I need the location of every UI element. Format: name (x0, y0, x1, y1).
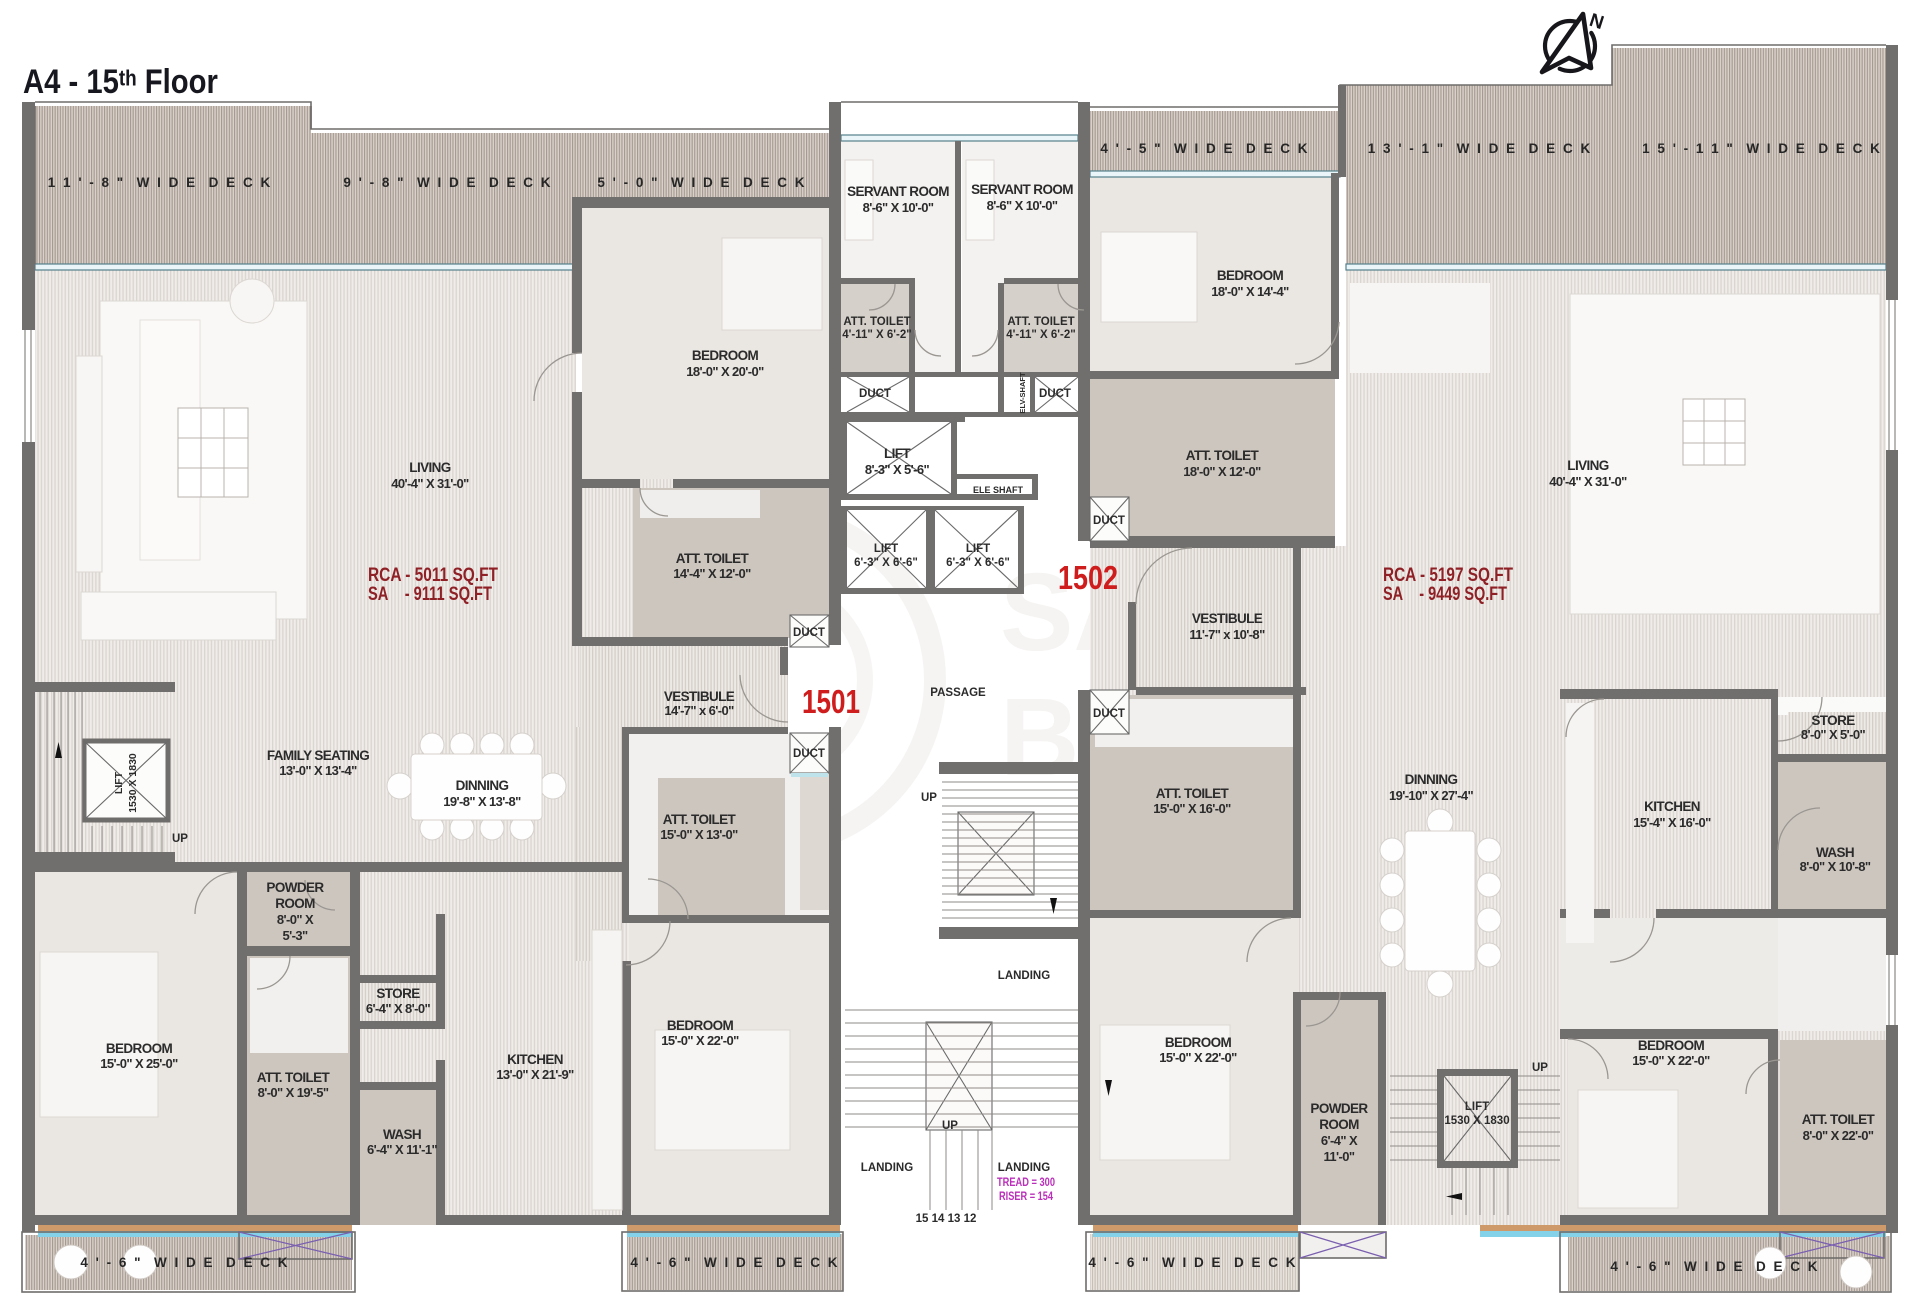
svg-text:1 1 ' - 8 " W I D E D E C K: 1 1 ' - 8 " W I D E D E C K (48, 175, 272, 190)
svg-text:LIVING: LIVING (409, 460, 451, 475)
svg-text:UP: UP (921, 792, 937, 804)
svg-text:RISER = 154: RISER = 154 (999, 1191, 1053, 1203)
svg-text:WASH: WASH (383, 1127, 421, 1142)
svg-text:1 5 ' - 1 1 " W I D E D E C: 1 5 ' - 1 1 " W I D E D E C K (1642, 141, 1882, 156)
svg-text:DUCT: DUCT (1093, 708, 1125, 720)
svg-text:LIFT: LIFT (874, 543, 898, 555)
svg-text:14'-4" X 12'-0": 14'-4" X 12'-0" (673, 566, 751, 581)
svg-text:SA - 9449 SQ.FT: SA - 9449 SQ.FT (1383, 584, 1507, 605)
svg-text:ROOM: ROOM (1319, 1117, 1359, 1132)
svg-text:13'-0" X 13'-4": 13'-0" X 13'-4" (279, 763, 357, 778)
svg-text:DUCT: DUCT (1039, 388, 1071, 400)
svg-text:8'-0" X: 8'-0" X (277, 912, 314, 927)
svg-text:RCA - 5011 SQ.FT: RCA - 5011 SQ.FT (368, 565, 498, 586)
svg-text:6'-3" X 6'-6": 6'-3" X 6'-6" (946, 557, 1010, 569)
svg-text:5'-3": 5'-3" (282, 928, 307, 943)
svg-text:LANDING: LANDING (998, 1162, 1050, 1174)
svg-text:ATT. TOILET: ATT. TOILET (1156, 786, 1230, 801)
svg-text:18'-0" X 20'-0": 18'-0" X 20'-0" (686, 364, 764, 379)
svg-text:40'-4" X 31'-0": 40'-4" X 31'-0" (391, 476, 469, 491)
svg-text:BEDROOM: BEDROOM (667, 1018, 734, 1033)
svg-text:ATT. TOILET: ATT. TOILET (257, 1070, 331, 1085)
svg-text:1530 X 1830: 1530 X 1830 (1444, 1115, 1509, 1127)
svg-text:BEDROOM: BEDROOM (1638, 1038, 1705, 1053)
svg-text:VESTIBULE: VESTIBULE (664, 689, 735, 704)
svg-text:8'-6" X 10'-0": 8'-6" X 10'-0" (987, 198, 1058, 213)
svg-text:19'-10" X 27'-4": 19'-10" X 27'-4" (1389, 788, 1474, 803)
svg-text:UP: UP (1532, 1062, 1548, 1074)
svg-text:15'-0" X 13'-0": 15'-0" X 13'-0" (660, 827, 738, 842)
svg-text:ATT. TOILET: ATT. TOILET (1186, 448, 1260, 463)
svg-text:4 ' - 6 " W I D E D E C K: 4 ' - 6 " W I D E D E C K (1610, 1259, 1819, 1274)
svg-text:15'-0" X 22'-0": 15'-0" X 22'-0" (1632, 1053, 1710, 1068)
svg-text:1502: 1502 (1058, 559, 1118, 596)
svg-text:KITCHEN: KITCHEN (1644, 799, 1700, 814)
svg-text:VESTIBULE: VESTIBULE (1192, 611, 1263, 626)
svg-text:FAMILY SEATING: FAMILY SEATING (267, 748, 369, 763)
svg-text:ELV-SHAFT: ELV-SHAFT (1018, 372, 1027, 414)
svg-text:WASH: WASH (1816, 845, 1854, 860)
svg-text:ATT. TOILET: ATT. TOILET (843, 316, 910, 328)
svg-text:8'-6" X 10'-0": 8'-6" X 10'-0" (863, 200, 934, 215)
svg-text:RCA - 5197 SQ.FT: RCA - 5197 SQ.FT (1383, 565, 1513, 586)
svg-text:6'-4" X: 6'-4" X (1321, 1133, 1358, 1148)
svg-text:DUCT: DUCT (859, 388, 891, 400)
svg-text:4 ' - 6 " W I D E D E C K: 4 ' - 6 " W I D E D E C K (1088, 1255, 1297, 1270)
svg-text:LANDING: LANDING (861, 1162, 913, 1174)
svg-text:5 ' - 0 " W I D E D E C K: 5 ' - 0 " W I D E D E C K (597, 175, 806, 190)
svg-text:BEDROOM: BEDROOM (1165, 1035, 1232, 1050)
svg-text:15'-0" X 22'-0": 15'-0" X 22'-0" (661, 1033, 739, 1048)
svg-text:15'-0" X 25'-0": 15'-0" X 25'-0" (100, 1056, 178, 1071)
svg-text:PASSAGE: PASSAGE (930, 687, 986, 699)
svg-text:4'-11" X 6'-2": 4'-11" X 6'-2" (842, 329, 911, 341)
svg-text:9 ' - 8 " W I D E D E C K: 9 ' - 8 " W I D E D E C K (343, 175, 552, 190)
svg-text:UP: UP (172, 833, 188, 845)
svg-text:ATT. TOILET: ATT. TOILET (1802, 1112, 1876, 1127)
svg-text:BEDROOM: BEDROOM (106, 1041, 173, 1056)
svg-text:LIFT: LIFT (884, 446, 911, 461)
svg-text:BEDROOM: BEDROOM (692, 348, 759, 363)
svg-text:13'-0" X 21'-9": 13'-0" X 21'-9" (496, 1067, 574, 1082)
svg-text:4 ' - 6 " W I D E D E C K: 4 ' - 6 " W I D E D E C K (630, 1255, 839, 1270)
svg-text:4 ' - 5 " W I D E D E C K: 4 ' - 5 " W I D E D E C K (1100, 141, 1309, 156)
svg-text:4'-11" X 6'-2": 4'-11" X 6'-2" (1006, 329, 1075, 341)
svg-text:6'-3" X 6'-6": 6'-3" X 6'-6" (854, 557, 918, 569)
svg-text:ATT. TOILET: ATT. TOILET (663, 812, 737, 827)
svg-text:11'-7" x 10'-8": 11'-7" x 10'-8" (1189, 627, 1265, 642)
svg-text:4 ' - 6 " W I D E D E C K: 4 ' - 6 " W I D E D E C K (80, 1255, 289, 1270)
svg-text:ATT. TOILET: ATT. TOILET (676, 551, 750, 566)
svg-text:ELE SHAFT: ELE SHAFT (973, 485, 1024, 495)
svg-text:1530 X 1830: 1530 X 1830 (127, 753, 139, 813)
svg-text:ROOM: ROOM (275, 896, 315, 911)
svg-text:8'-3" X 5'-6": 8'-3" X 5'-6" (865, 462, 930, 477)
svg-text:SERVANT ROOM: SERVANT ROOM (971, 182, 1073, 197)
svg-text:KITCHEN: KITCHEN (507, 1052, 563, 1067)
svg-text:15 14 13 12: 15 14 13 12 (916, 1213, 977, 1225)
svg-text:15'-0" X 16'-0": 15'-0" X 16'-0" (1153, 801, 1231, 816)
svg-text:40'-4" X 31'-0": 40'-4" X 31'-0" (1549, 474, 1627, 489)
svg-text:LANDING: LANDING (998, 970, 1050, 982)
svg-text:STORE: STORE (376, 986, 420, 1001)
svg-text:DINNING: DINNING (1405, 772, 1458, 787)
svg-text:15'-4" X 16'-0": 15'-4" X 16'-0" (1633, 815, 1711, 830)
svg-text:6'-4" X 11'-1": 6'-4" X 11'-1" (367, 1142, 438, 1157)
svg-text:DINNING: DINNING (456, 778, 509, 793)
svg-text:11'-0": 11'-0" (1324, 1149, 1355, 1164)
svg-text:1 3 ' - 1 " W I D E D E C K: 1 3 ' - 1 " W I D E D E C K (1368, 141, 1592, 156)
svg-text:ATT. TOILET: ATT. TOILET (1007, 316, 1074, 328)
svg-text:LIFT: LIFT (113, 771, 125, 794)
svg-text:8'-0" X 10'-8": 8'-0" X 10'-8" (1800, 859, 1871, 874)
svg-text:BEDROOM: BEDROOM (1217, 268, 1284, 283)
svg-text:8'-0" X 5'-0": 8'-0" X 5'-0" (1801, 727, 1866, 742)
svg-text:18'-0" X 14'-4": 18'-0" X 14'-4" (1211, 284, 1289, 299)
svg-text:DUCT: DUCT (793, 748, 825, 760)
svg-text:LIVING: LIVING (1567, 458, 1609, 473)
svg-text:DUCT: DUCT (793, 627, 825, 639)
svg-text:6'-4" X 8'-0": 6'-4" X 8'-0" (366, 1001, 431, 1016)
svg-text:1501: 1501 (802, 683, 860, 720)
svg-text:SA - 9111 SQ.FT: SA - 9111 SQ.FT (368, 584, 492, 605)
svg-text:14'-7" x 6'-0": 14'-7" x 6'-0" (664, 703, 734, 718)
svg-text:8'-0" X 22'-0": 8'-0" X 22'-0" (1803, 1128, 1874, 1143)
svg-text:TREAD = 300: TREAD = 300 (997, 1177, 1055, 1189)
svg-text:UP: UP (942, 1120, 958, 1132)
svg-text:SERVANT ROOM: SERVANT ROOM (847, 184, 949, 199)
svg-text:LIFT: LIFT (966, 543, 990, 555)
svg-text:POWDER: POWDER (266, 880, 324, 895)
svg-text:18'-0" X 12'-0": 18'-0" X 12'-0" (1183, 464, 1261, 479)
svg-text:POWDER: POWDER (1310, 1101, 1368, 1116)
svg-text:LIFT: LIFT (1465, 1101, 1489, 1113)
svg-text:8'-0" X 19'-5": 8'-0" X 19'-5" (258, 1085, 329, 1100)
svg-text:STORE: STORE (1811, 713, 1855, 728)
svg-text:DUCT: DUCT (1093, 515, 1125, 527)
svg-text:15'-0" X 22'-0": 15'-0" X 22'-0" (1159, 1050, 1237, 1065)
svg-text:19'-8" X 13'-8": 19'-8" X 13'-8" (443, 794, 521, 809)
